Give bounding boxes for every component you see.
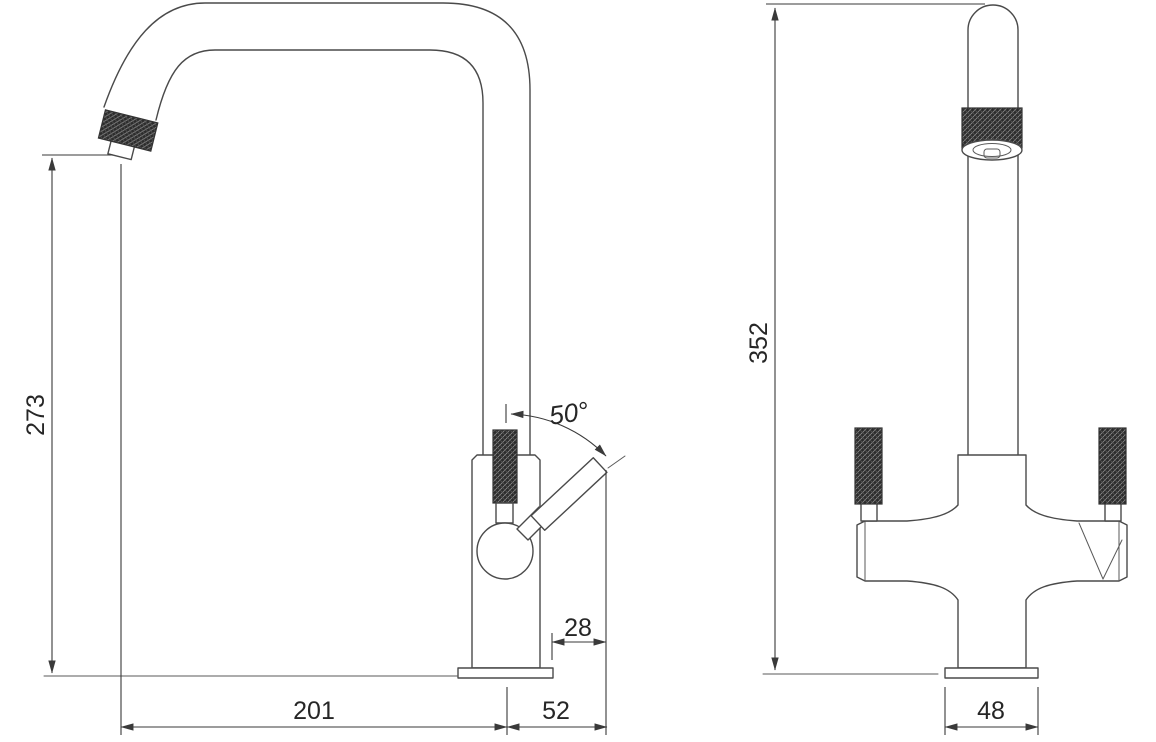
right-handle-grip xyxy=(1099,428,1126,504)
base-flange-front xyxy=(945,668,1038,678)
technical-drawing-canvas: 50° 28 273 201 52 xyxy=(0,0,1156,742)
faucet-dimension-drawing: 50° 28 273 201 52 xyxy=(0,0,1156,742)
base-width-label: 48 xyxy=(977,697,1005,725)
reach-label: 201 xyxy=(293,697,335,725)
handle-projection-label: 52 xyxy=(542,697,570,725)
left-handle-grip xyxy=(855,428,882,504)
spout-height-label: 273 xyxy=(22,394,50,436)
right-handle-stem xyxy=(1105,503,1121,521)
handle-stem-side xyxy=(496,503,513,523)
overall-height-label: 352 xyxy=(745,322,773,364)
base-flange xyxy=(458,668,553,678)
handle-angle-label: 50° xyxy=(547,395,590,430)
handle-overhang-label: 28 xyxy=(564,614,592,642)
handle-grip-knurled-side xyxy=(493,430,517,503)
left-handle-stem xyxy=(861,503,877,521)
